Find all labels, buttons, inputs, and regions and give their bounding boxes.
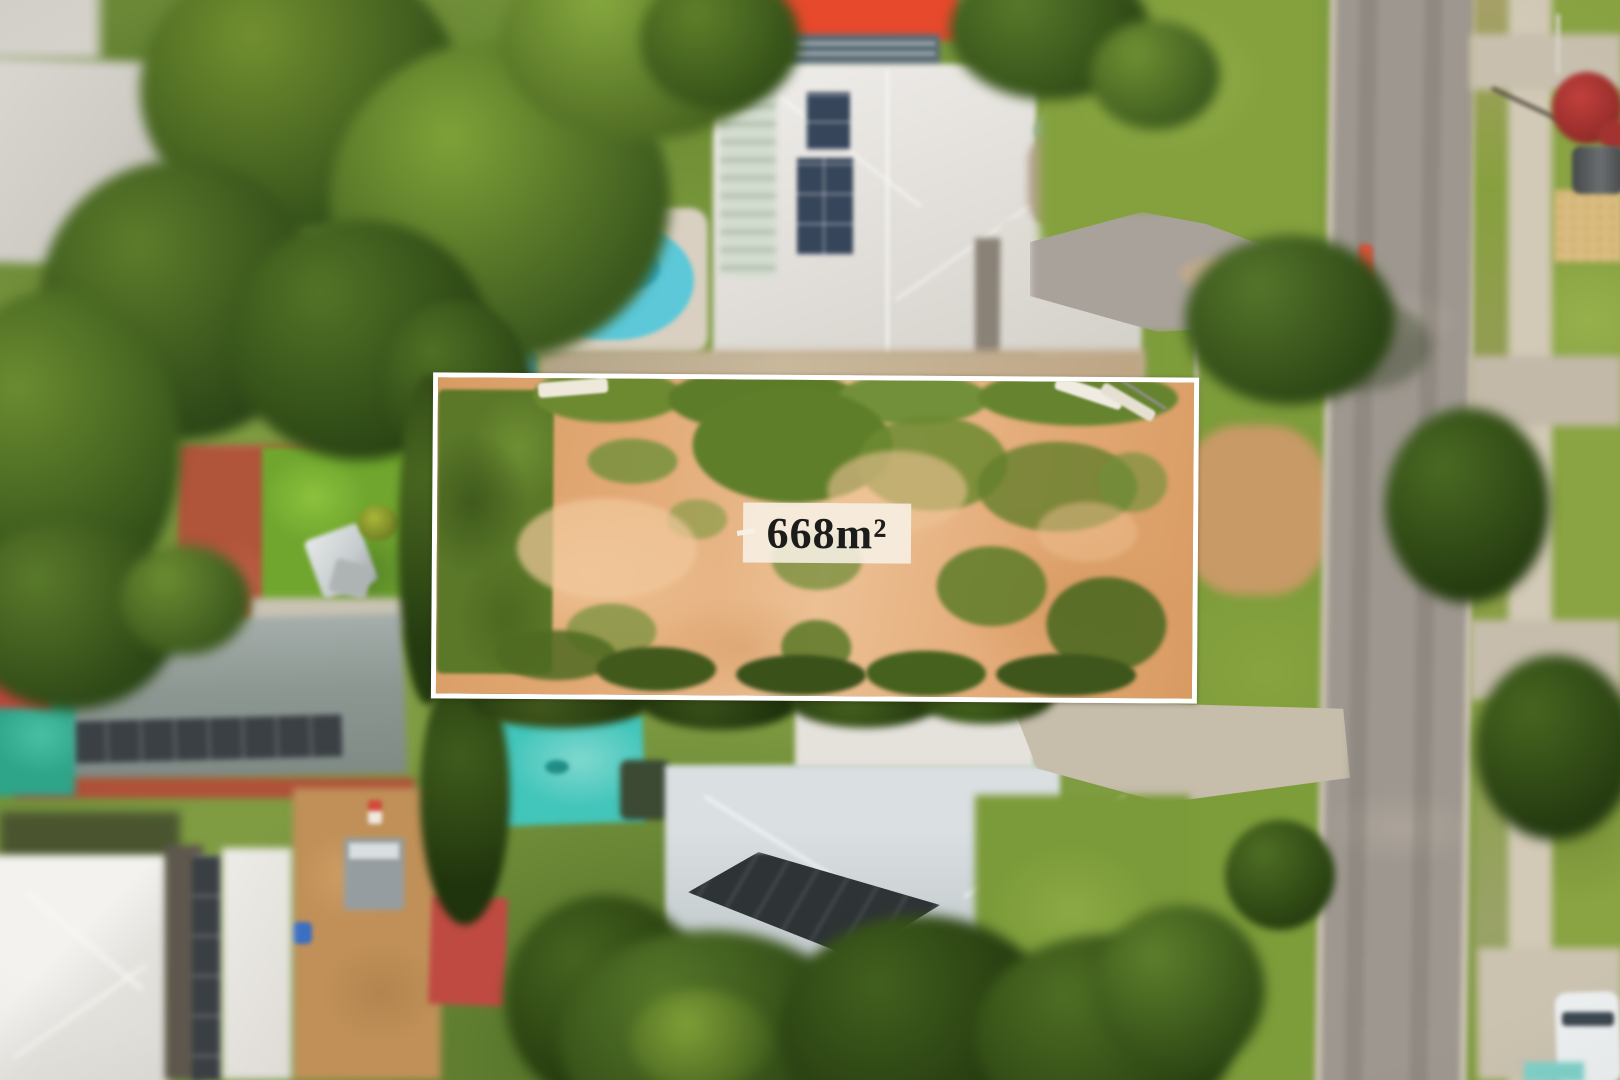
sand-patch	[1037, 502, 1137, 563]
tree-canopy	[1225, 820, 1335, 930]
pool-cover-spot	[545, 760, 569, 774]
tree-canopy	[1385, 408, 1550, 603]
roof-top-left-corner	[0, 0, 100, 60]
weed-patch	[587, 438, 677, 484]
area-label-text: 668m²	[766, 507, 887, 559]
bush-row-bottom	[596, 646, 716, 691]
dirt-yard	[293, 788, 441, 1080]
tree-canopy-highlight	[630, 990, 770, 1080]
utility-pole	[1556, 14, 1560, 74]
tree-canopy	[1185, 235, 1395, 405]
area-label: 668m²	[743, 502, 911, 563]
verge-dirt-patch	[1180, 425, 1330, 595]
tree-canopy	[120, 545, 250, 655]
solar-panel-array	[806, 92, 850, 150]
weed-patch	[1097, 452, 1167, 512]
tree-canopy	[1095, 905, 1265, 1075]
sand-patch	[517, 498, 698, 599]
bush-row-bottom	[866, 650, 986, 696]
survey-peg	[368, 800, 382, 824]
solar-panel-strip	[71, 714, 342, 763]
veranda-roof	[790, 34, 940, 68]
hedge-shadow-strip	[0, 812, 180, 860]
vacant-lot-highlight: 668m²	[431, 372, 1199, 703]
lot-ground: 668m²	[436, 377, 1194, 698]
shed-roof-panels	[349, 843, 399, 859]
weed-patch	[936, 546, 1047, 627]
gravel-pad	[1554, 190, 1620, 262]
blue-tarp	[292, 922, 312, 944]
white-garage-roof	[222, 848, 292, 1080]
solar-edge-strip	[192, 855, 222, 1080]
tree-canopy	[1090, 20, 1220, 130]
veranda-rail	[795, 42, 935, 45]
parked-car-dark	[1572, 146, 1620, 194]
veranda-rail	[795, 52, 935, 55]
solar-panel-array	[797, 158, 853, 255]
pool-edge-bottom-right	[1524, 1062, 1584, 1080]
aerial-photo: 668m²	[0, 0, 1620, 1080]
pergola-slat-roof	[720, 90, 776, 276]
pool-equipment	[620, 760, 670, 820]
car-windshield	[1562, 1012, 1614, 1026]
roof-ridge	[886, 70, 889, 360]
yellow-shrub	[358, 505, 398, 541]
